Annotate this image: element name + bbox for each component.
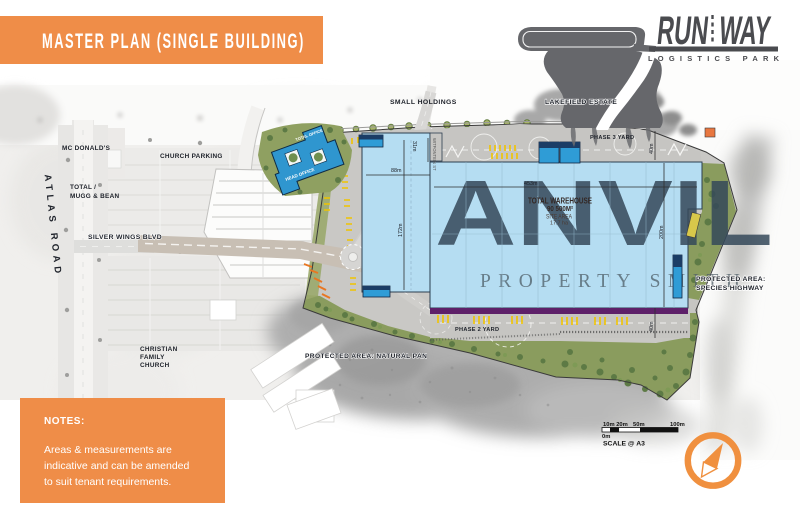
svg-text:TOTAL WAREHOUSE: TOTAL WAREHOUSE [528,197,593,206]
svg-text:WAY: WAY [717,9,773,53]
svg-text:SILVER WINGS BLVD: SILVER WINGS BLVD [88,234,162,241]
svg-text:CHURCH: CHURCH [140,362,170,369]
svg-text:MC DONALD'S: MC DONALD'S [62,145,111,152]
svg-text:CHRISTIAN: CHRISTIAN [140,346,178,353]
svg-text:FAMILY: FAMILY [140,354,165,361]
svg-text:SPECIES HIGHWAY: SPECIES HIGHWAY [696,285,764,292]
svg-text:SITE AREA: SITE AREA [546,214,573,221]
svg-text:TOTAL /: TOTAL / [70,184,96,191]
svg-text:WITFONTEIN ST: WITFONTEIN ST [432,138,437,171]
svg-text:PROTECTED AREA:: PROTECTED AREA: [696,276,766,283]
svg-text:31m: 31m [411,141,417,152]
svg-text:PROTECTED AREA: NATURAL PAN: PROTECTED AREA: NATURAL PAN [305,353,427,360]
svg-text:453m: 453m [524,181,538,187]
svg-text:CHURCH PARKING: CHURCH PARKING [160,153,223,160]
svg-text:PHASE 2 YARD: PHASE 2 YARD [455,327,499,333]
svg-text:ANVIL: ANVIL [435,161,773,265]
svg-text:88m: 88m [391,168,402,174]
svg-text:RUN: RUN [655,9,711,53]
svg-text:PHASE 3 YARD: PHASE 3 YARD [590,135,634,141]
svg-text:172m: 172m [398,223,404,237]
svg-text:17.7 ha: 17.7 ha [550,221,569,227]
svg-text:SMALL HOLDINGS: SMALL HOLDINGS [390,99,457,106]
svg-text:40m: 40m [649,143,655,154]
svg-text:40m: 40m [649,321,655,332]
svg-text:LAKEFIELD ESTATE: LAKEFIELD ESTATE [545,99,617,106]
svg-text:0m: 0m [602,434,610,440]
svg-text:MUGG & BEAN: MUGG & BEAN [70,193,120,200]
svg-text:200m: 200m [659,225,665,239]
svg-text:90 500M²: 90 500M² [547,206,574,213]
svg-text:SCALE @ A3: SCALE @ A3 [603,441,645,448]
